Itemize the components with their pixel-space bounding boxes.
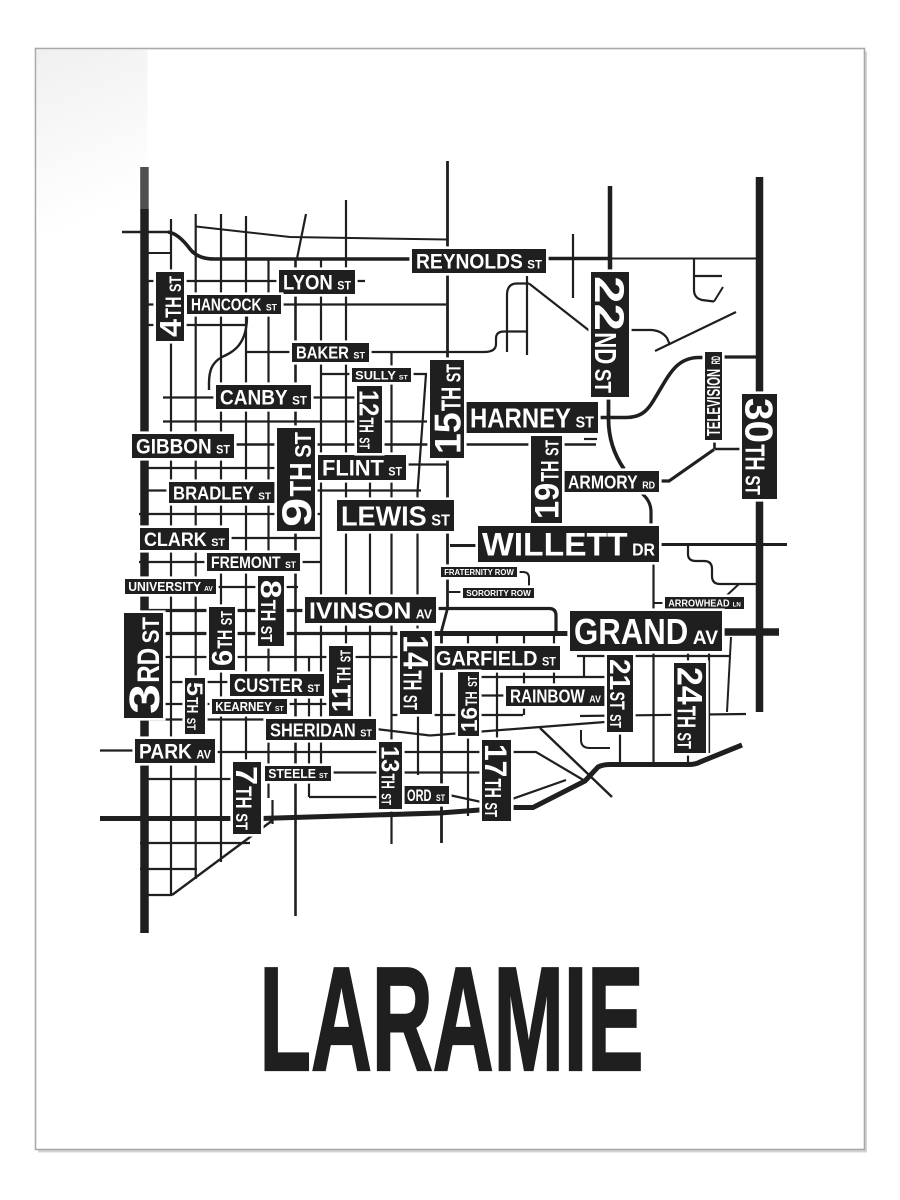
- svg-text:GRAND: GRAND: [574, 611, 688, 652]
- svg-text:FREMONT: FREMONT: [211, 554, 281, 572]
- svg-text:AV: AV: [589, 694, 601, 705]
- svg-text:TH: TH: [397, 670, 425, 690]
- svg-text:ST: ST: [339, 650, 355, 662]
- svg-text:UNIVERSITY: UNIVERSITY: [128, 579, 201, 594]
- svg-text:ND: ND: [588, 332, 622, 364]
- svg-text:TELEVISION: TELEVISION: [703, 369, 724, 436]
- svg-text:AV: AV: [204, 584, 213, 593]
- svg-text:ST: ST: [184, 718, 198, 731]
- svg-text:PARK: PARK: [139, 739, 192, 764]
- svg-text:ST: ST: [307, 683, 320, 695]
- svg-text:ST: ST: [219, 611, 236, 625]
- svg-text:RD: RD: [710, 356, 723, 364]
- svg-text:ST: ST: [442, 364, 465, 383]
- svg-text:TH: TH: [231, 786, 256, 808]
- svg-text:ST: ST: [360, 728, 372, 739]
- svg-text:ST: ST: [527, 258, 542, 272]
- svg-text:IVINSON: IVINSON: [309, 597, 411, 623]
- svg-text:ST: ST: [232, 813, 251, 830]
- svg-text:AV: AV: [196, 748, 211, 762]
- svg-text:AV: AV: [416, 606, 432, 621]
- svg-text:ST: ST: [337, 279, 351, 293]
- svg-text:ST: ST: [606, 714, 623, 728]
- svg-text:ST: ST: [398, 695, 420, 710]
- svg-text:ORD: ORD: [407, 787, 432, 805]
- svg-text:8: 8: [254, 580, 286, 599]
- svg-text:TH: TH: [462, 691, 481, 706]
- svg-text:RD: RD: [642, 480, 655, 491]
- svg-text:SHERIDAN: SHERIDAN: [270, 720, 356, 741]
- svg-text:TH: TH: [537, 461, 565, 482]
- svg-text:21: 21: [603, 659, 635, 690]
- svg-text:ST: ST: [292, 394, 308, 408]
- svg-text:ST: ST: [605, 692, 628, 710]
- svg-text:ST: ST: [290, 432, 316, 458]
- svg-text:TH: TH: [435, 387, 466, 411]
- svg-text:TH: TH: [214, 630, 237, 649]
- svg-text:ST: ST: [139, 616, 165, 643]
- svg-text:WILLETT: WILLETT: [482, 527, 628, 563]
- svg-text:ST: ST: [216, 443, 231, 457]
- svg-text:17: 17: [478, 744, 514, 777]
- svg-text:LEWIS: LEWIS: [341, 501, 427, 532]
- svg-text:ST: ST: [378, 793, 394, 805]
- svg-text:3: 3: [121, 684, 169, 714]
- svg-text:HARNEY: HARNEY: [470, 403, 571, 434]
- svg-text:TH: TH: [256, 600, 279, 622]
- svg-text:CANBY: CANBY: [220, 385, 288, 410]
- svg-text:SORORITY ROW: SORORITY ROW: [466, 588, 531, 598]
- svg-text:RAINBOW: RAINBOW: [510, 686, 585, 706]
- svg-text:ST: ST: [388, 465, 402, 479]
- svg-text:CLARK: CLARK: [144, 529, 207, 551]
- svg-text:AV: AV: [693, 627, 719, 649]
- svg-text:DR: DR: [632, 540, 655, 560]
- svg-text:24: 24: [669, 667, 708, 705]
- svg-text:ST: ST: [576, 415, 595, 432]
- svg-text:5: 5: [182, 682, 207, 696]
- svg-text:TH: TH: [161, 297, 186, 318]
- svg-text:ST: ST: [285, 560, 296, 570]
- svg-text:TH: TH: [183, 697, 201, 713]
- svg-text:ST: ST: [257, 626, 274, 643]
- svg-text:ST: ST: [436, 793, 445, 803]
- svg-text:15: 15: [426, 412, 468, 454]
- svg-text:ST: ST: [542, 440, 563, 456]
- svg-text:TH: TH: [335, 667, 356, 683]
- svg-text:SULLY: SULLY: [355, 368, 396, 382]
- svg-text:STEELE: STEELE: [268, 766, 316, 781]
- svg-text:ST: ST: [481, 802, 501, 817]
- svg-text:GARFIELD: GARFIELD: [436, 646, 538, 671]
- svg-text:CUSTER: CUSTER: [234, 675, 303, 697]
- svg-text:ARROWHEAD: ARROWHEAD: [668, 599, 729, 610]
- svg-text:9: 9: [273, 498, 320, 527]
- svg-text:6: 6: [207, 650, 239, 666]
- svg-text:ST: ST: [356, 437, 373, 449]
- svg-text:13: 13: [375, 746, 403, 772]
- svg-text:ST: ST: [431, 513, 450, 530]
- svg-text:11: 11: [327, 684, 357, 712]
- svg-text:HANCOCK: HANCOCK: [191, 296, 262, 315]
- svg-text:ST: ST: [258, 491, 271, 502]
- svg-text:19: 19: [529, 483, 567, 519]
- svg-text:LN: LN: [733, 602, 742, 609]
- svg-text:ST: ST: [542, 655, 557, 669]
- svg-text:7: 7: [229, 766, 264, 785]
- svg-text:ST: ST: [211, 537, 225, 549]
- svg-text:16: 16: [456, 707, 482, 732]
- svg-text:ST: ST: [353, 350, 365, 361]
- svg-text:REYNOLDS: REYNOLDS: [416, 249, 523, 274]
- svg-text:TH: TH: [740, 444, 771, 470]
- svg-text:TH: TH: [377, 774, 398, 789]
- svg-text:TH: TH: [284, 462, 318, 496]
- svg-text:ST: ST: [590, 369, 616, 393]
- svg-text:TH: TH: [480, 779, 506, 798]
- svg-text:22: 22: [586, 276, 633, 331]
- svg-text:FRATERNITY ROW: FRATERNITY ROW: [444, 567, 514, 577]
- svg-text:GIBBON: GIBBON: [136, 434, 212, 459]
- svg-text:ST: ST: [266, 302, 277, 313]
- svg-text:14: 14: [395, 635, 434, 670]
- svg-text:LYON: LYON: [283, 270, 333, 295]
- svg-text:30: 30: [737, 398, 780, 443]
- svg-text:ST: ST: [319, 772, 328, 780]
- svg-text:ST: ST: [275, 705, 285, 713]
- svg-text:ARMORY: ARMORY: [568, 472, 638, 493]
- svg-text:LARAMIE: LARAMIE: [260, 937, 644, 1102]
- svg-text:RD: RD: [131, 648, 166, 683]
- svg-text:FLINT: FLINT: [322, 456, 384, 481]
- svg-text:ST: ST: [399, 374, 408, 381]
- svg-text:12: 12: [354, 390, 385, 416]
- svg-text:ST: ST: [166, 276, 185, 292]
- svg-text:4: 4: [153, 319, 188, 337]
- svg-text:TH: TH: [671, 706, 699, 728]
- svg-text:ST: ST: [741, 475, 764, 495]
- svg-text:TH: TH: [355, 418, 377, 433]
- svg-text:ST: ST: [466, 676, 480, 687]
- svg-text:ST: ST: [672, 732, 694, 749]
- svg-text:BAKER: BAKER: [296, 344, 349, 363]
- svg-text:KEARNEY: KEARNEY: [215, 699, 272, 714]
- svg-text:BRADLEY: BRADLEY: [173, 483, 254, 504]
